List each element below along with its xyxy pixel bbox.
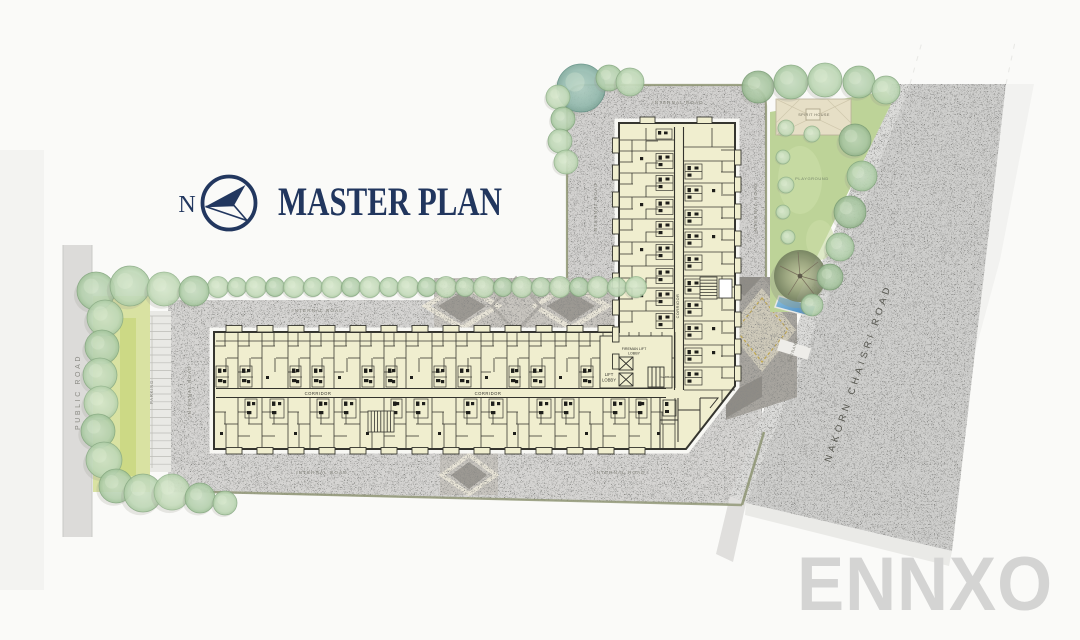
svg-text:INTERNAL ROAD: INTERNAL ROAD [753, 182, 758, 233]
svg-text:GARBAGE: GARBAGE [661, 375, 676, 379]
svg-text:INTERNAL ROAD: INTERNAL ROAD [187, 365, 192, 416]
svg-text:N: N [178, 192, 195, 218]
svg-text:LIFT: LIFT [605, 372, 614, 377]
svg-text:CORRIDOR: CORRIDOR [676, 294, 680, 319]
svg-text:ENNXO: ENNXO [797, 542, 1053, 627]
svg-text:INTERNAL ROAD: INTERNAL ROAD [292, 308, 343, 313]
svg-text:INTERNAL ROAD: INTERNAL ROAD [296, 470, 347, 475]
svg-text:PARKING: PARKING [149, 380, 154, 404]
svg-text:PLAYGROUND: PLAYGROUND [795, 176, 829, 181]
svg-text:CORRIDOR: CORRIDOR [305, 391, 332, 396]
svg-text:PUBLIC ROAD: PUBLIC ROAD [75, 354, 82, 430]
svg-text:CORRIDOR: CORRIDOR [475, 391, 502, 396]
svg-text:MASTER PLAN: MASTER PLAN [278, 179, 502, 224]
svg-text:LOBBY: LOBBY [602, 378, 616, 383]
svg-text:INTERNAL ROAD: INTERNAL ROAD [593, 182, 598, 233]
svg-text:LOBBY: LOBBY [628, 352, 641, 356]
svg-text:INTERNAL ROAD: INTERNAL ROAD [594, 470, 645, 475]
svg-text:SPIRIT HOUSE: SPIRIT HOUSE [798, 113, 830, 117]
svg-text:FIREMAN LIFT: FIREMAN LIFT [622, 347, 647, 351]
svg-text:INTERNAL ROAD: INTERNAL ROAD [652, 100, 703, 105]
